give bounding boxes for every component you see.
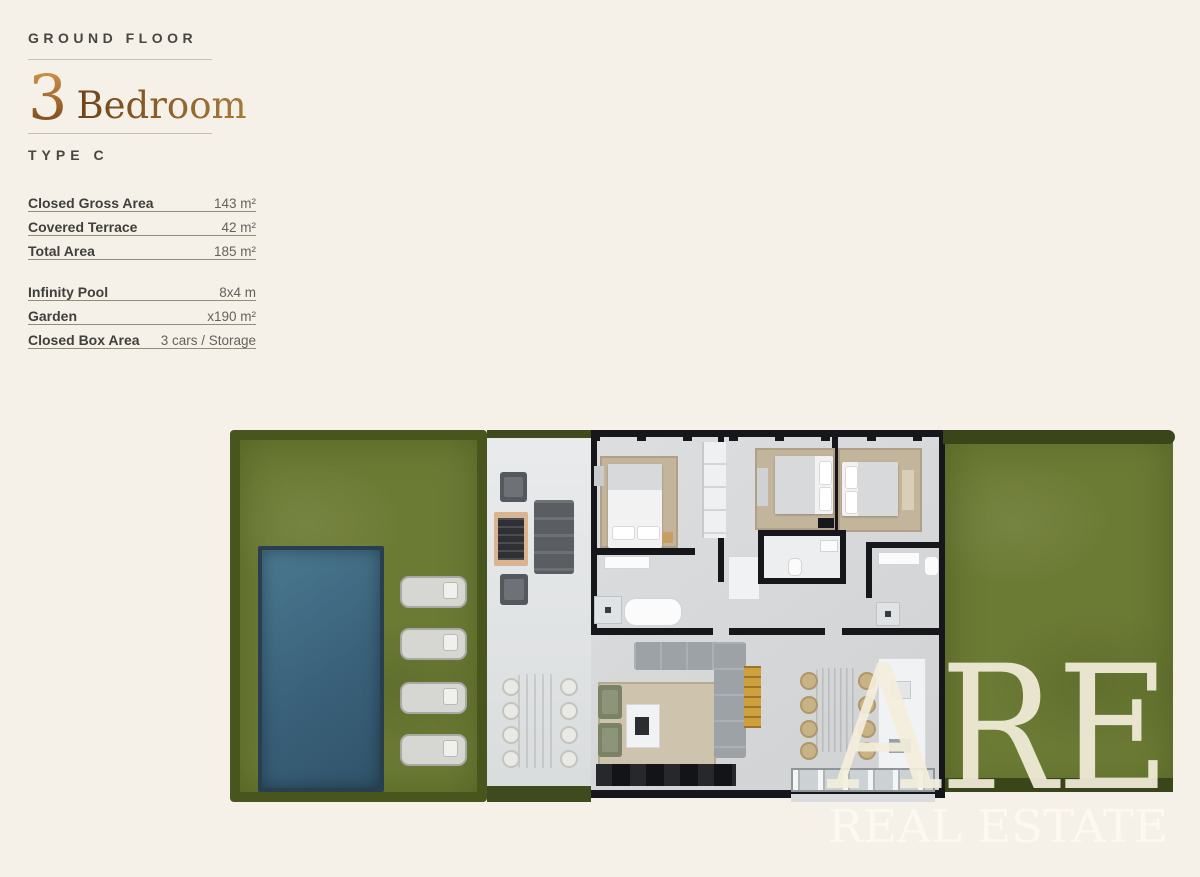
duvet — [608, 464, 662, 490]
lounger-pillow — [443, 740, 458, 757]
outdoor-dining-chair — [502, 726, 520, 744]
lounger-pillow — [443, 688, 458, 705]
watermark-name: REAL ESTATE — [826, 800, 1176, 854]
outdoor-dining-table — [518, 674, 556, 768]
spec-row-garden: Garden x190 m² — [28, 301, 256, 325]
coffee-table — [626, 704, 660, 748]
bbq-counter — [596, 764, 736, 786]
pillow — [612, 526, 635, 540]
nightstand — [594, 466, 604, 486]
hall-closet — [728, 556, 760, 600]
sun-lounger — [400, 682, 467, 714]
info-panel: GROUND FLOOR 3 Bedroom TYPE C Closed Gro… — [28, 30, 260, 349]
spec-row-total-area: Total Area 185 m² — [28, 236, 256, 260]
outdoor-dining-chair — [502, 702, 520, 720]
wall-interior — [591, 628, 713, 635]
type-label: TYPE C — [28, 147, 260, 163]
bathroom-1-shower — [594, 596, 622, 624]
bathroom-2-sink — [820, 540, 838, 552]
watermark-initials: ARE — [826, 648, 1176, 800]
outdoor-armchair — [500, 574, 528, 605]
plan-title: 3 Bedroom — [28, 66, 260, 124]
pillow — [845, 491, 858, 514]
sun-lounger — [400, 734, 467, 766]
wall-interior — [729, 628, 825, 635]
bathroom-3-shower — [876, 602, 900, 626]
drain — [605, 607, 611, 613]
outdoor-dining-chair — [560, 726, 578, 744]
spec-table: Closed Gross Area 143 m² Covered Terrace… — [28, 188, 256, 349]
nightstand — [757, 468, 768, 506]
outdoor-dining-chair — [560, 702, 578, 720]
bathroom-3-sink — [878, 552, 920, 565]
pillow — [845, 466, 858, 489]
watermark-name-text: REAL ESTATE — [828, 800, 1168, 853]
floor-label: GROUND FLOOR — [28, 30, 260, 46]
outdoor-dining-chair — [502, 678, 520, 696]
outdoor-sofa-wood — [494, 512, 528, 566]
drain — [885, 611, 891, 617]
bedroom-2-bed — [775, 456, 833, 514]
dining-chair — [800, 696, 818, 714]
wall-interior — [866, 542, 945, 548]
cabinet-yellow — [744, 666, 761, 728]
wardrobe — [702, 442, 726, 538]
hedge-bottom — [487, 786, 591, 802]
watermark-initials-text: ARE — [826, 648, 1170, 800]
bedroom-3-bed — [842, 462, 898, 516]
cushion — [498, 518, 524, 560]
outdoor-dining-chair — [560, 678, 578, 696]
sun-lounger — [400, 576, 467, 608]
spec-row-infinity-pool: Infinity Pool 8x4 m — [28, 277, 256, 301]
cushion — [504, 477, 523, 497]
spec-row-closed-box-area: Closed Box Area 3 cars / Storage — [28, 325, 256, 349]
pillow — [637, 526, 660, 540]
tv-stand — [818, 518, 834, 528]
bathroom-1-sink — [604, 556, 650, 569]
floor-plan: ARE — [230, 430, 1175, 802]
bedroom-1-bed — [608, 464, 662, 548]
bedroom-word: Bedroom — [76, 87, 246, 124]
dining-chair — [800, 742, 818, 760]
armchair-green — [598, 685, 622, 719]
sun-lounger — [400, 628, 467, 660]
spec-gap — [28, 260, 256, 277]
cushion — [602, 690, 618, 714]
bathroom-2 — [758, 530, 846, 584]
armchair-green — [598, 723, 622, 757]
outdoor-dining-chair — [560, 750, 578, 768]
wall-interior — [866, 542, 872, 598]
sofa-l-side — [714, 642, 746, 758]
coffee-table-tray — [635, 717, 649, 735]
lounger-pillow — [443, 634, 458, 651]
bedroom-count: 3 — [28, 71, 67, 124]
spec-row-covered-terrace: Covered Terrace 42 m² — [28, 212, 256, 236]
dining-chair — [800, 720, 818, 738]
outdoor-dining-chair — [502, 750, 520, 768]
roof-beams — [591, 430, 945, 441]
outdoor-armchair — [500, 472, 527, 502]
cushion — [602, 728, 618, 752]
wall-interior — [842, 628, 945, 635]
bathroom-1-bathtub — [624, 598, 682, 626]
divider-line — [28, 59, 212, 60]
lounger-pillow — [443, 582, 458, 599]
duvet — [858, 462, 898, 516]
dining-chair — [800, 672, 818, 690]
cushion — [504, 579, 524, 600]
wall-interior — [591, 548, 695, 555]
pillow — [819, 461, 832, 485]
infinity-pool — [258, 546, 384, 792]
page: GROUND FLOOR 3 Bedroom TYPE C Closed Gro… — [0, 0, 1200, 877]
hedge-top — [487, 430, 591, 438]
stool — [662, 532, 673, 543]
hedge-top — [943, 430, 1175, 444]
bathroom-3-toilet — [924, 556, 939, 576]
pillow — [819, 487, 832, 511]
dresser — [902, 470, 914, 510]
bathroom-2-toilet — [788, 558, 802, 576]
spec-row-closed-gross-area: Closed Gross Area 143 m² — [28, 188, 256, 212]
duvet — [775, 456, 815, 514]
outdoor-sofa-large — [534, 500, 574, 574]
